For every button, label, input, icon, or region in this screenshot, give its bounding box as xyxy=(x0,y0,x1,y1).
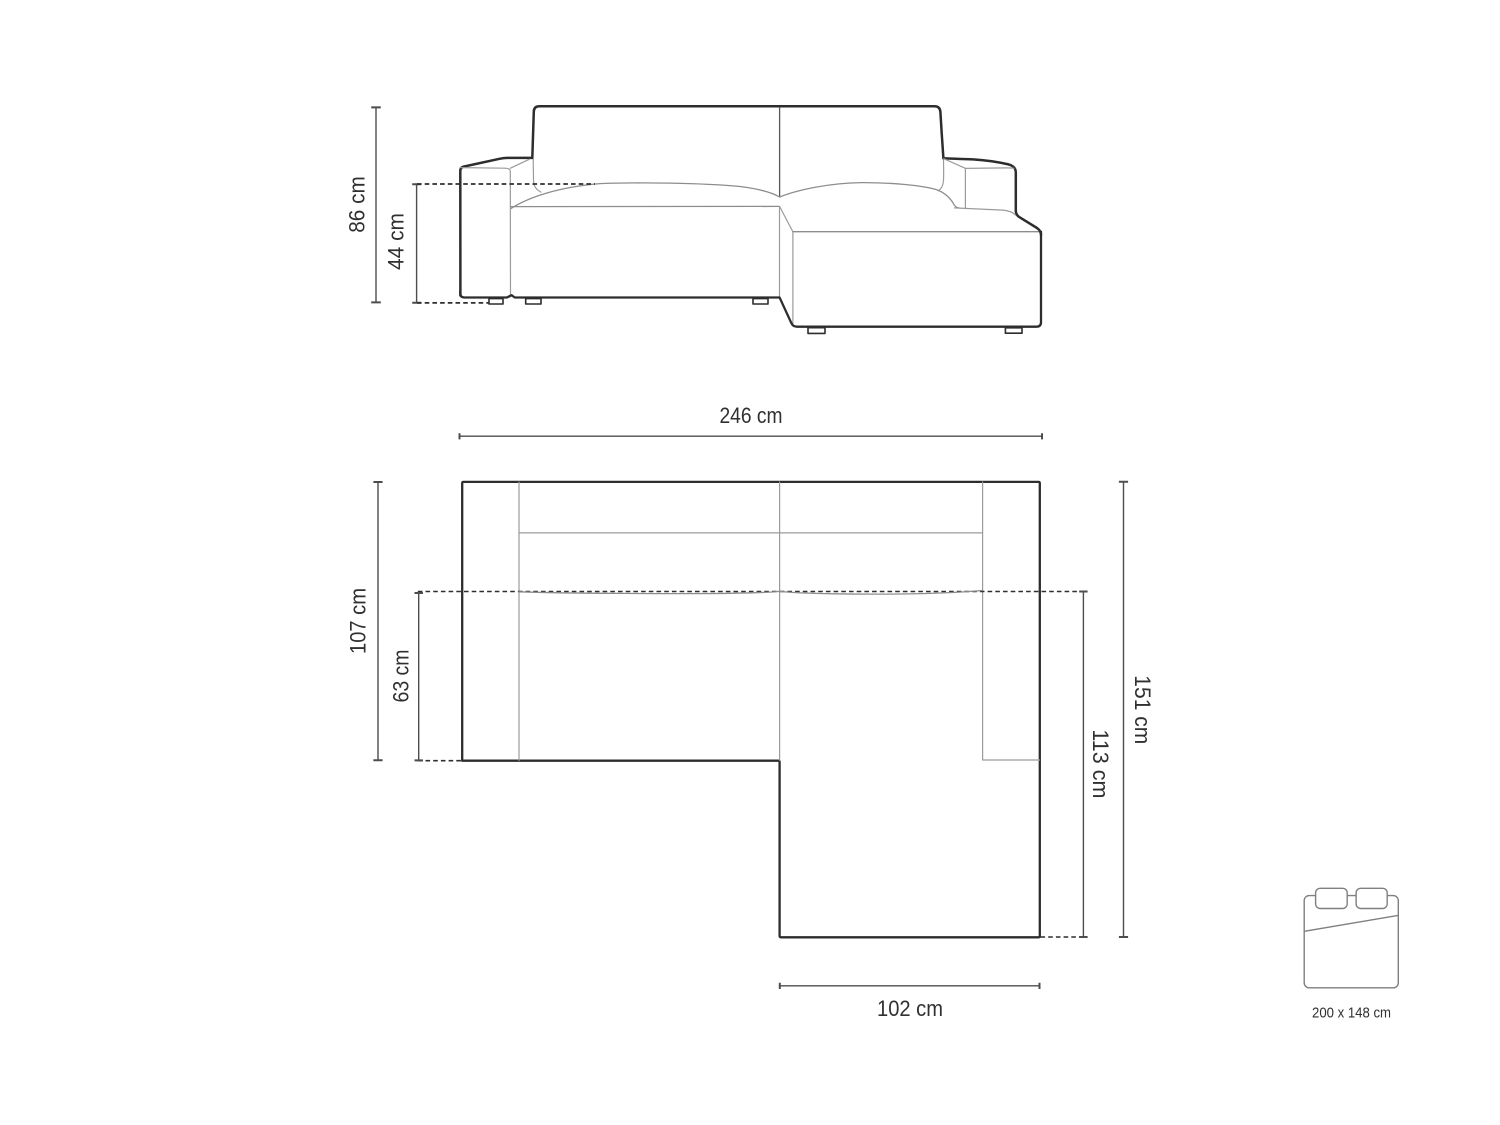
svg-text:246 cm: 246 cm xyxy=(720,403,783,428)
svg-text:200 x 148 cm: 200 x 148 cm xyxy=(1312,1005,1391,1021)
svg-text:151 cm: 151 cm xyxy=(1130,675,1155,744)
svg-text:86 cm: 86 cm xyxy=(344,176,369,233)
svg-text:102 cm: 102 cm xyxy=(877,996,943,1021)
svg-text:113 cm: 113 cm xyxy=(1088,729,1113,798)
svg-text:44 cm: 44 cm xyxy=(384,213,409,270)
svg-text:107 cm: 107 cm xyxy=(345,588,370,654)
svg-text:63 cm: 63 cm xyxy=(388,650,413,703)
